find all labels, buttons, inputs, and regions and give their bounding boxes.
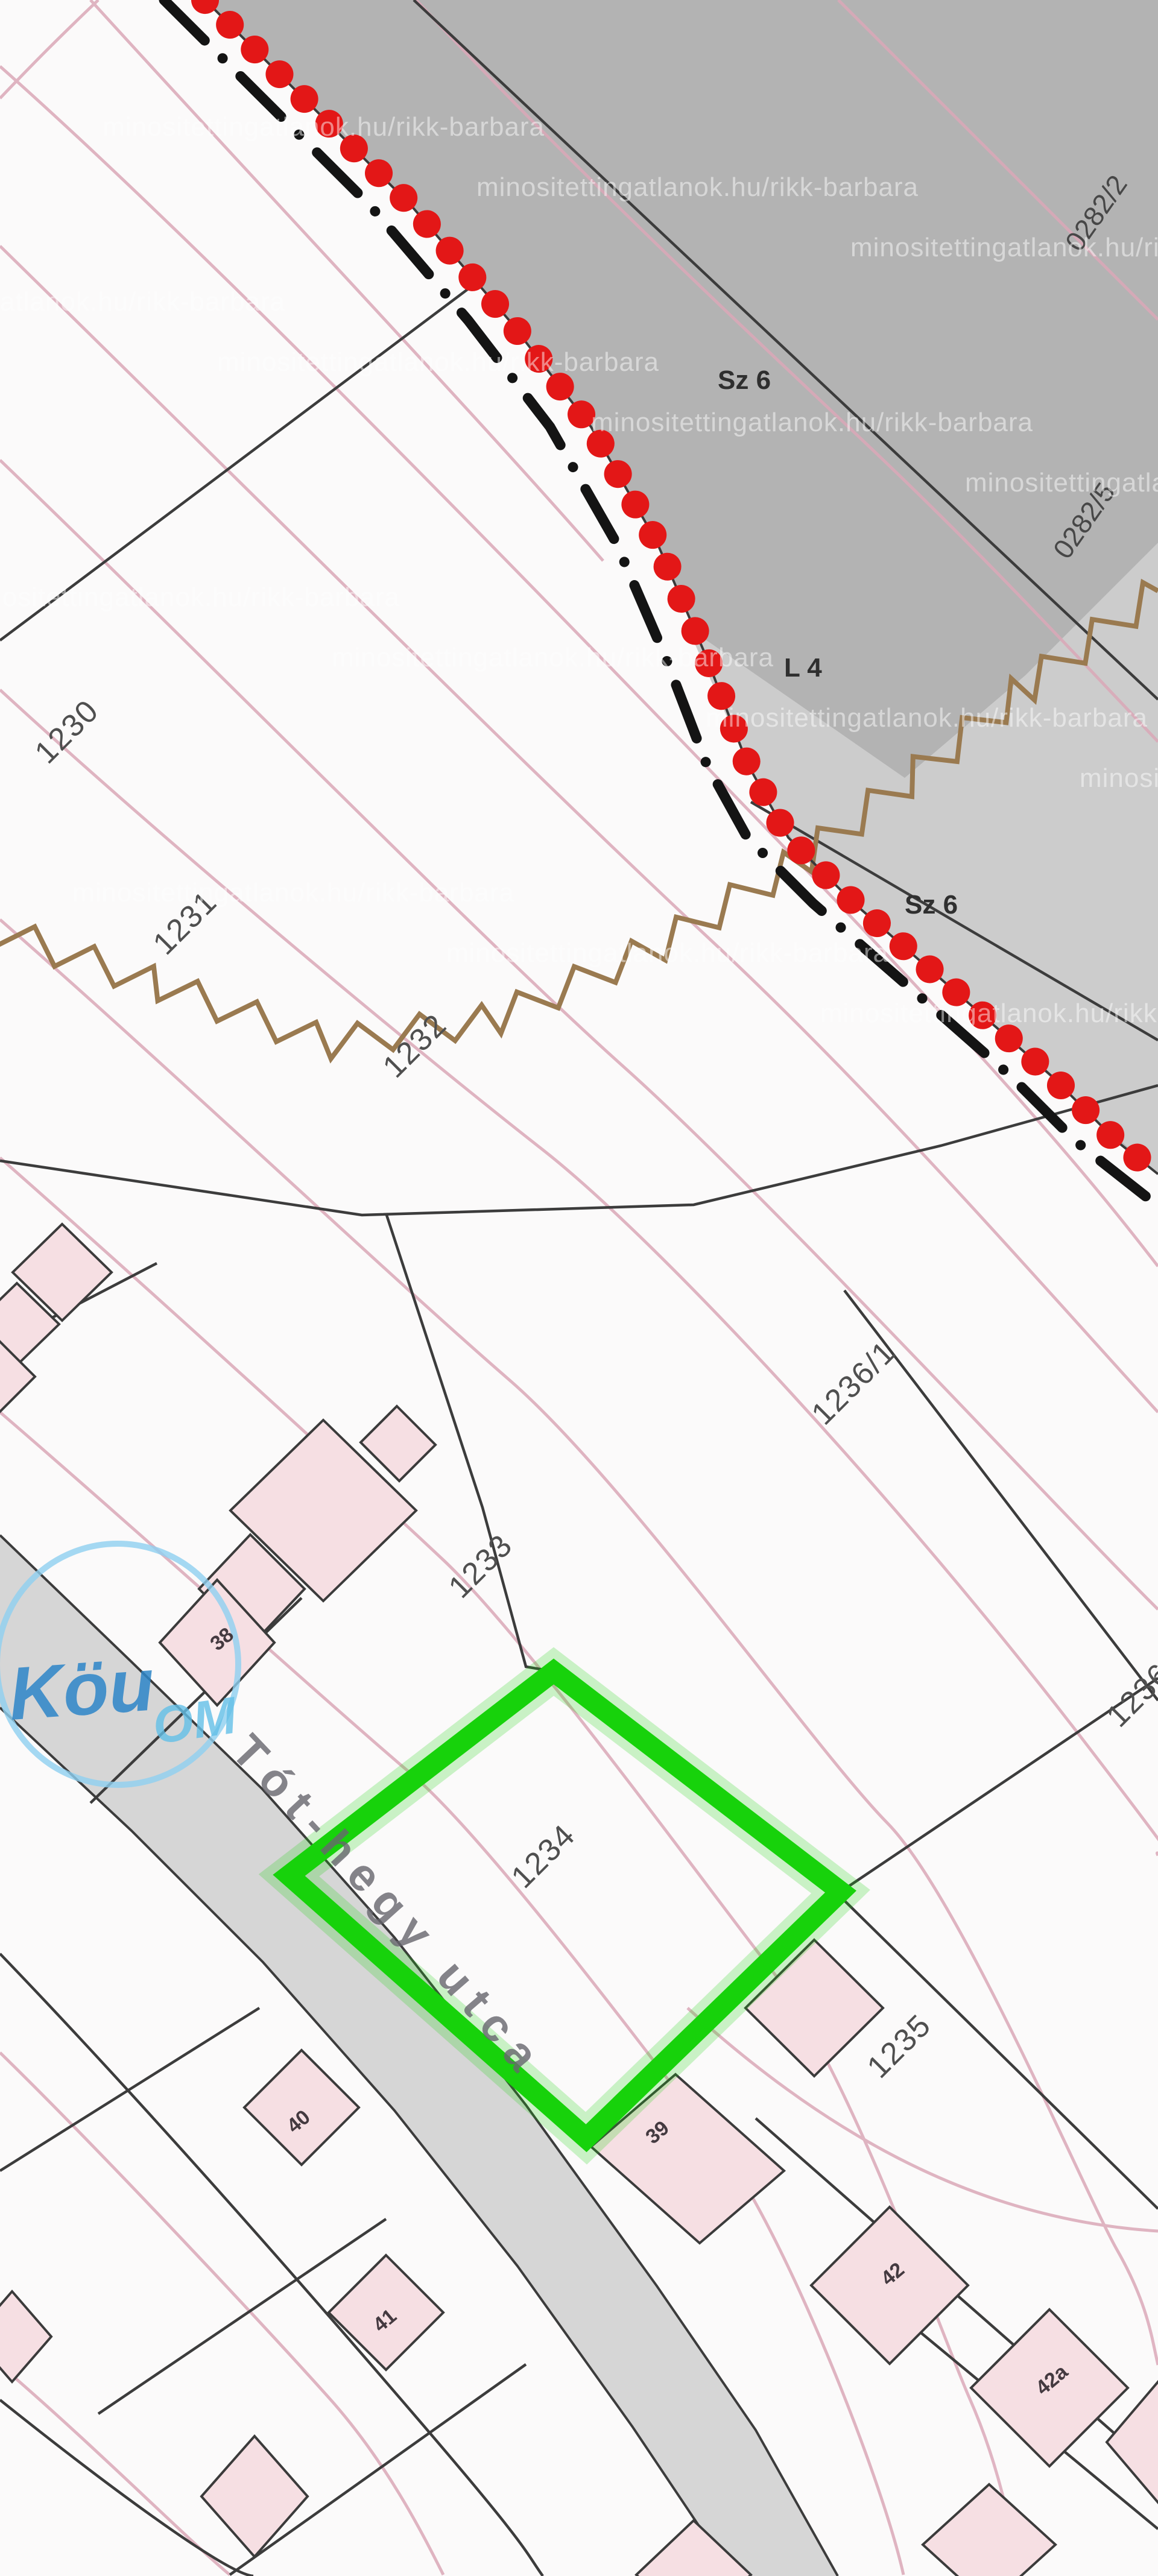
watermark-text: minositettingatlanok.hu/rikk-barbara <box>0 582 400 612</box>
watermark-text: minositettingatlanok.hu/rikk-barbara <box>591 408 1033 437</box>
watermark-text: minositettingatlanok.hu/rikk-barbara <box>476 172 919 202</box>
watermark-text: minositettingatlanok.hu/rikk-barbara <box>820 999 1158 1028</box>
landuse-label-sz6-b: Sz 6 <box>905 890 958 920</box>
watermark-text: minositettingatlanok.hu/rikk-barbara <box>0 287 285 317</box>
watermark-text: minositettingatlanok.hu/rikk-barbara <box>72 878 514 908</box>
landuse-label-l4: L 4 <box>784 653 822 683</box>
stamp-text-om: OM <box>149 1686 241 1755</box>
landuse-label-sz6-a: Sz 6 <box>718 365 771 395</box>
cadastral-map-svg: 0282/2 0282/5 Sz 6 L 4 Sz 6 1230 1231 12… <box>0 0 1158 2576</box>
watermark-text: minositettingatlanok.hu/rikk-barbara <box>965 468 1158 497</box>
watermark-text: minositettingatlanok.hu/rikk-barbara <box>217 347 659 377</box>
watermark-text: minositettingatlanok.hu/rikk-barbara <box>706 703 1148 733</box>
watermark-text: minositettingatlanok.hu/rikk-barbara <box>446 938 888 968</box>
watermark-text: minositettingatlanok.hu/rikk-barbara <box>850 233 1158 262</box>
watermark-text: minositettingatlanok.hu/rikk-barbara <box>332 643 774 672</box>
map-canvas[interactable]: 0282/2 0282/5 Sz 6 L 4 Sz 6 1230 1231 12… <box>0 0 1158 2576</box>
watermark-text: minositettingatlanok.hu/rikk-barbara <box>1080 763 1158 793</box>
watermark-text: minositettingatlanok.hu/rikk-barbara <box>103 112 545 142</box>
stamp-text-kou: Köu <box>6 1643 157 1735</box>
